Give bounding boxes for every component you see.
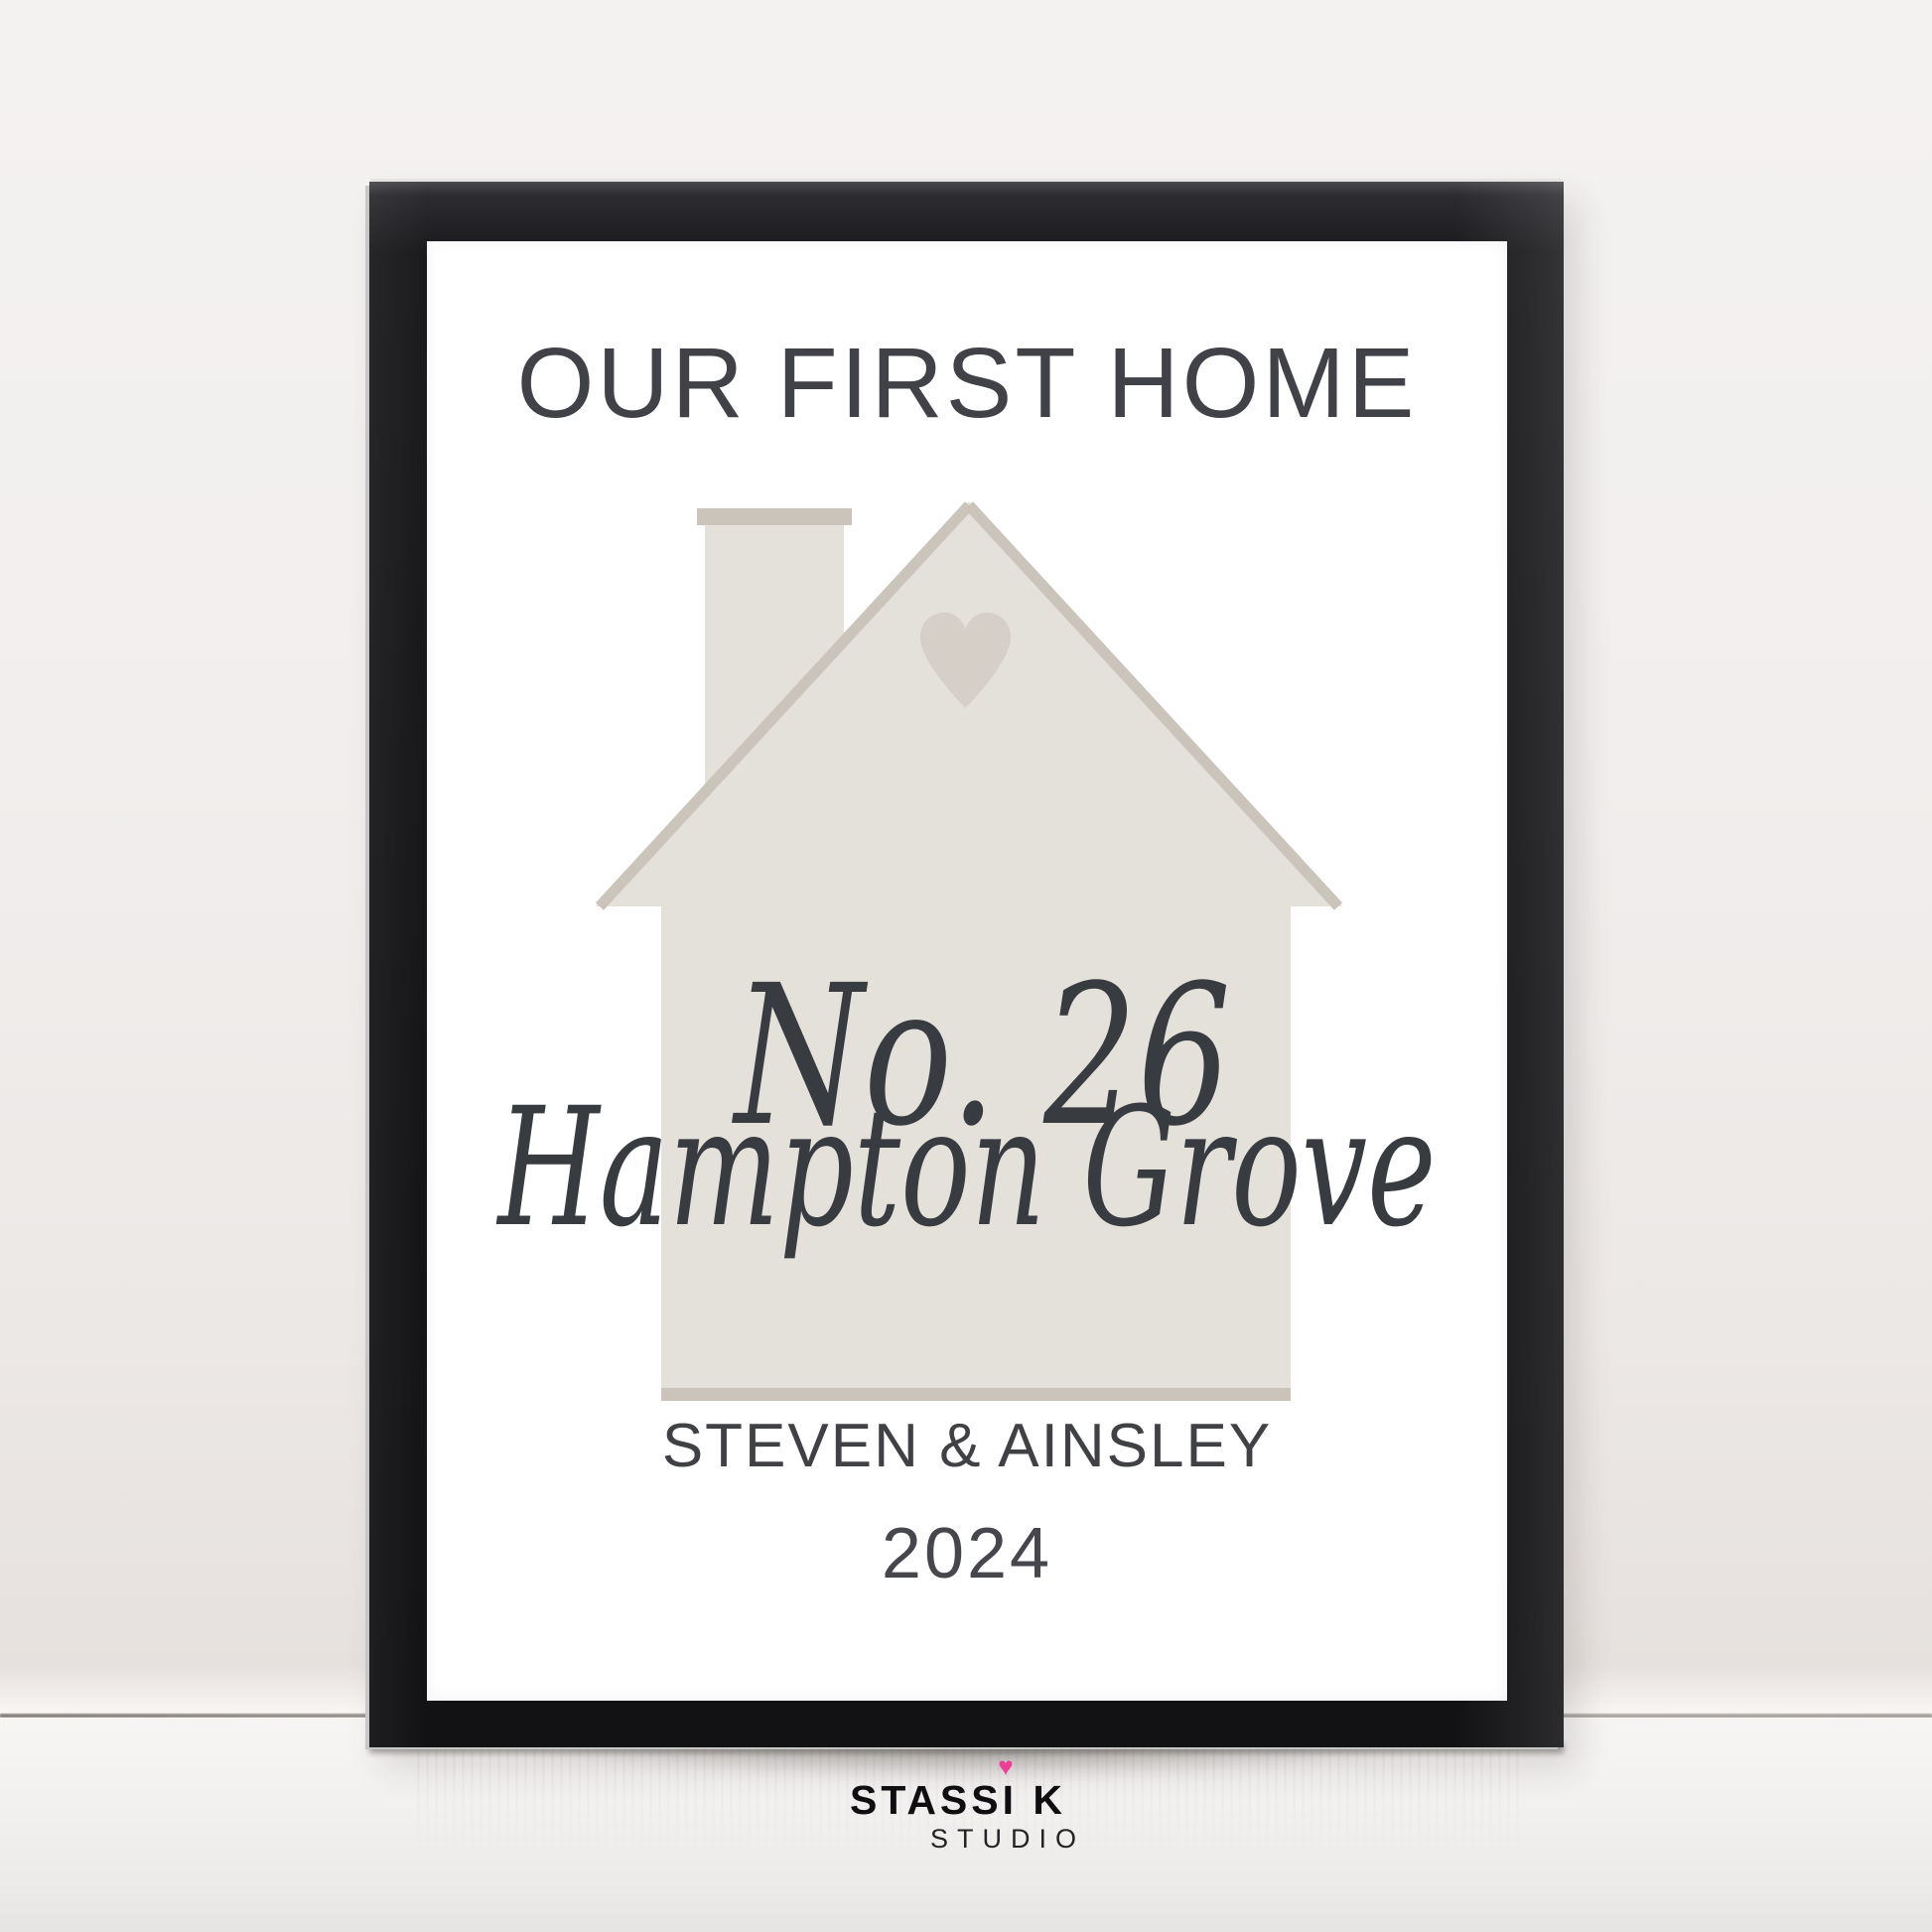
address-script: No. 26 Hampton Grove	[427, 241, 1507, 1701]
brand-heart-icon: ♥	[991, 1753, 1021, 1779]
street-name-text: Hampton Grove	[495, 1072, 1436, 1263]
brand-name: STASSI K	[839, 1780, 1077, 1821]
art-print: OUR FIRST HOME No. 26 Hampton Grove STEV…	[427, 241, 1507, 1701]
picture-frame: OUR FIRST HOME No. 26 Hampton Grove STEV…	[369, 182, 1564, 1747]
product-photo-scene: OUR FIRST HOME No. 26 Hampton Grove STEV…	[0, 0, 1932, 1932]
brand-subtitle: STUDIO	[923, 1826, 1092, 1853]
year-text: 2024	[427, 1518, 1507, 1589]
owners-names: STEVEN & AINSLEY	[427, 1416, 1507, 1477]
